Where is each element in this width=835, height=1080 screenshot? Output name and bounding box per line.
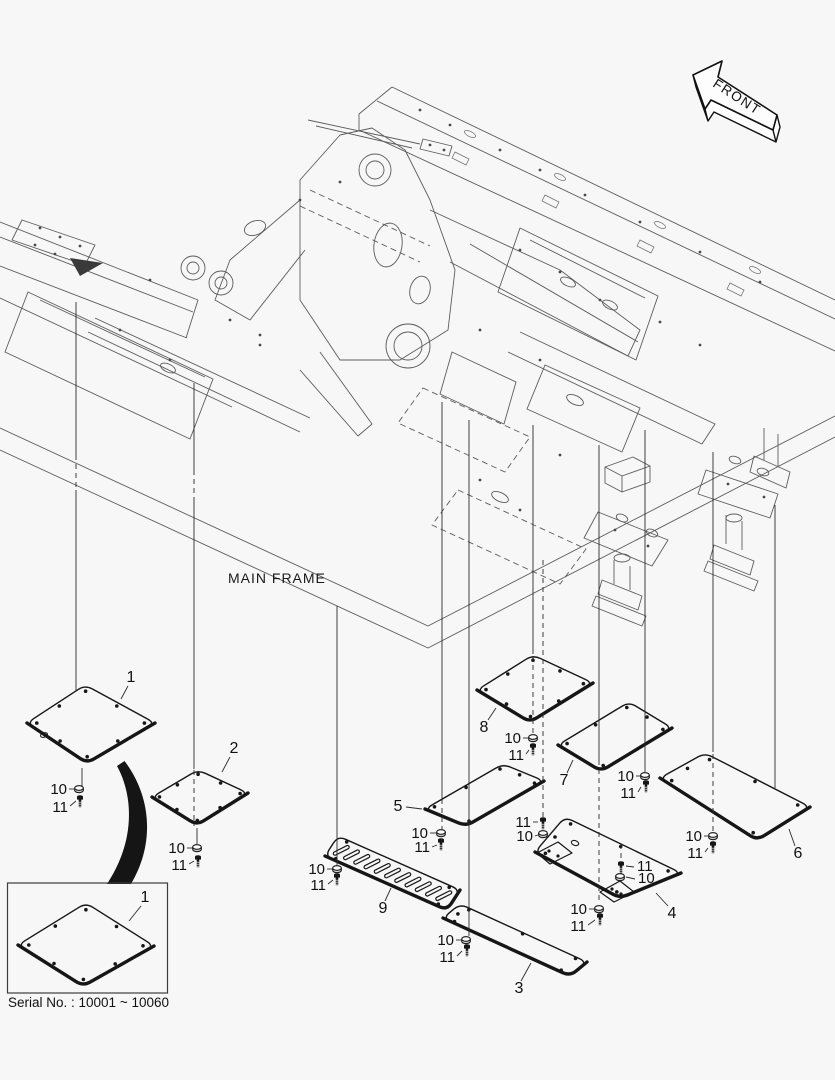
bracket-hole-dot <box>547 849 550 852</box>
washer-callout-7: 10 <box>617 768 634 785</box>
plate-hole-dot <box>218 806 222 810</box>
cover-plate-7 <box>558 704 672 769</box>
frame-dot <box>54 253 57 256</box>
frame-dot <box>519 509 522 512</box>
bolt-callout-9: 11 <box>515 814 531 831</box>
plate-hole-dot <box>113 962 117 966</box>
part-leader-8 <box>488 708 496 720</box>
callout-leader <box>526 750 529 754</box>
plate-outline <box>155 772 244 823</box>
plate-hole-dot <box>625 706 629 710</box>
plate-hole-dot <box>686 767 690 771</box>
bolt-symbol <box>540 817 546 829</box>
plate-hole-dot <box>505 702 509 706</box>
callout-leader <box>535 835 538 836</box>
plate-hole-dot <box>529 715 533 719</box>
plate-hole-dot <box>84 689 88 693</box>
washer-callout-2: 10 <box>168 840 185 857</box>
parts-catalog-page: 1011101110111011101110111011101110111011… <box>0 0 835 1080</box>
frame-dot <box>443 149 446 152</box>
part-number-6: 6 <box>794 845 803 862</box>
plate-outline <box>561 704 668 769</box>
frame-dot <box>169 359 172 362</box>
part-number-2: 2 <box>230 740 239 757</box>
frame-dot <box>539 169 542 172</box>
washer-symbol <box>641 773 650 780</box>
frame-dot <box>519 249 522 252</box>
bolt-callout-4: 11 <box>414 839 430 856</box>
plate-hole-dot <box>196 772 200 776</box>
inset-part-leader <box>129 906 141 921</box>
plate-hole-dot <box>544 852 548 856</box>
plate-hole-dot <box>645 715 649 719</box>
plate-hole-dot <box>574 957 578 961</box>
bolt-symbol <box>195 855 201 867</box>
part-leader-4 <box>656 893 668 906</box>
hidden-cover-outline <box>300 190 586 584</box>
washer-symbol <box>193 845 202 852</box>
plate-hole-dot <box>661 728 665 732</box>
washer-callout-3: 10 <box>308 861 325 878</box>
callout-leader <box>328 880 333 884</box>
plate-hole-dot <box>569 822 573 826</box>
bolt-symbol <box>710 841 716 853</box>
plate-hole-dot <box>58 704 62 708</box>
frame-dot <box>34 244 37 247</box>
callout-labels: 1011101110111011101110111011101110111011… <box>50 669 802 997</box>
part-number-8: 8 <box>480 719 489 736</box>
plate-hole-dot <box>84 908 88 912</box>
frame-dot <box>539 359 542 362</box>
inset-part-number: 1 <box>141 889 150 906</box>
bolt-symbol <box>643 780 649 792</box>
bolt-symbol <box>334 873 340 885</box>
part-number-7: 7 <box>560 772 569 789</box>
plate-hole-dot <box>85 755 89 759</box>
callout-leader <box>588 920 595 925</box>
washer-symbol <box>616 874 625 881</box>
frame-dot <box>479 479 482 482</box>
plate-hole-dot <box>557 699 561 703</box>
frame-dot <box>763 496 766 499</box>
plate-hole-dot <box>558 669 562 673</box>
plate-hole-dot <box>447 886 451 890</box>
frame-dot <box>479 329 482 332</box>
part-leader-6 <box>789 829 795 846</box>
washer-callout-11: 10 <box>570 901 587 918</box>
frame-dot <box>659 321 662 324</box>
bolt-symbol <box>464 944 470 956</box>
plate-hole-dot <box>58 739 62 743</box>
washer-symbol <box>529 735 538 742</box>
plate-outline <box>21 905 150 984</box>
plate-hole-dot <box>751 831 755 835</box>
part-leader-1 <box>121 686 128 699</box>
frame-dot <box>647 545 650 548</box>
bracket-hole-dot <box>610 887 613 890</box>
frame-dot <box>559 271 562 274</box>
frame-dot <box>584 194 587 197</box>
plate-hole-dot <box>115 925 119 929</box>
frame-dot <box>429 144 432 147</box>
frame-dot <box>614 529 617 532</box>
bolt-callout-1: 11 <box>52 799 68 816</box>
cover-plate-6 <box>660 755 810 838</box>
plate-hole-dot <box>141 944 145 948</box>
cover-plate-4 <box>535 819 681 902</box>
bolt-callout-2: 11 <box>171 857 187 874</box>
part-leader-2 <box>222 757 230 772</box>
plate-outline <box>480 657 589 720</box>
plate-outline <box>30 687 151 761</box>
plate-hole-dot <box>143 721 147 725</box>
plate-hole-dot <box>116 739 120 743</box>
part-number-9: 9 <box>379 900 388 917</box>
plate-hole-dot <box>175 808 179 812</box>
frame-dot <box>499 149 502 152</box>
plate-hole-dot <box>615 890 619 894</box>
frame-dot <box>639 221 642 224</box>
callout-leader <box>638 787 641 792</box>
part-number-5: 5 <box>394 798 403 815</box>
frame-dot <box>259 344 262 347</box>
plate-hole-dot <box>559 968 563 972</box>
serial-note: Serial No. : 10001 ~ 10060 <box>8 995 169 1010</box>
frame-dot <box>559 454 562 457</box>
washer-symbol <box>462 937 471 944</box>
frame-dot <box>339 181 342 184</box>
plate-hole-dot <box>498 767 502 771</box>
plate-hole-dot <box>433 805 437 809</box>
bolt-callout-3: 11 <box>310 877 326 894</box>
frame-dot <box>419 109 422 112</box>
callout-leader <box>70 801 76 806</box>
frame-dot <box>229 319 232 322</box>
plate-hole-dot <box>753 780 757 784</box>
frame-dot <box>149 279 152 282</box>
callout-leader <box>457 951 462 956</box>
plate-hole-dot <box>456 912 460 916</box>
plate-hole-dot <box>506 672 510 676</box>
frame-dot <box>759 281 762 284</box>
bracket-hole-dot <box>619 892 622 895</box>
plate-hole-dot <box>553 835 557 839</box>
plate-hole-dot <box>594 723 598 727</box>
plate-hole-dot <box>27 943 31 947</box>
detail-swoosh-arrow <box>107 761 147 884</box>
plate-hole-dot <box>521 932 525 936</box>
frame-dot <box>727 483 730 486</box>
plate-hole-dot <box>54 924 58 928</box>
bolt-callout-5: 11 <box>439 949 455 966</box>
main-frame-label: MAIN FRAME <box>228 570 326 586</box>
bolt-callout-10: 11 <box>637 858 653 875</box>
part-number-4: 4 <box>668 905 677 922</box>
part-leader-5 <box>406 807 422 809</box>
bolt-symbol <box>438 838 444 850</box>
bolt-callout-8: 11 <box>687 845 703 862</box>
frame-dot <box>59 236 62 239</box>
front-direction-arrow: FRONT <box>693 61 780 142</box>
plate-hole-dot <box>176 783 180 787</box>
callout-leader <box>432 845 437 847</box>
frame-dot <box>699 344 702 347</box>
callout-leader <box>189 861 194 864</box>
bracket-hole-dot <box>556 854 559 857</box>
bolt-symbol <box>597 913 603 925</box>
inset-cover-plate <box>18 905 154 984</box>
part-number-1: 1 <box>127 669 136 686</box>
washer-callout-6: 10 <box>504 730 521 747</box>
plate-hole-dot <box>115 704 119 708</box>
exploded-parts-diagram: 1011101110111011101110111011101110111011… <box>0 0 835 1080</box>
callout-leader <box>705 848 708 852</box>
frame-dot <box>79 245 82 248</box>
frame-bolt-dots <box>34 109 766 548</box>
washer-symbol <box>437 830 446 837</box>
plate-hole-dot <box>453 920 457 924</box>
bolt-callout-6: 11 <box>508 747 524 764</box>
washer-symbol <box>333 866 342 873</box>
frame-dot <box>39 227 42 230</box>
cover-plate-1 <box>27 687 155 761</box>
frame-dot <box>299 199 302 202</box>
plate-hole-dot <box>158 795 162 799</box>
plate-hole-dot <box>238 792 242 796</box>
cover-plate-2 <box>152 772 248 823</box>
bolt-callout-7: 11 <box>620 785 636 802</box>
frame-dot <box>599 299 602 302</box>
plate-hole-dot <box>518 773 522 777</box>
frame-dot <box>119 329 122 332</box>
plate-hole-dot <box>670 779 674 783</box>
washer-symbol <box>709 833 718 840</box>
plate-hole-dot <box>345 840 349 844</box>
part-leader-3 <box>521 963 531 981</box>
frame-dot <box>449 124 452 127</box>
main-frame-drawing <box>0 87 835 648</box>
plate-hole-dot <box>484 688 488 692</box>
plate-hole-dot <box>533 781 537 785</box>
frame-dot <box>259 334 262 337</box>
plate-hole-dot <box>35 721 39 725</box>
bolt-symbol <box>530 743 536 755</box>
frame-dot <box>699 251 702 254</box>
plate-hole-dot <box>601 764 605 768</box>
plate-hole-dot <box>437 902 441 906</box>
plate-hole-dot <box>582 682 586 686</box>
washer-callout-8: 10 <box>685 828 702 845</box>
bolt-callout-11: 11 <box>570 918 586 935</box>
plate-hole-dot <box>708 758 712 762</box>
plate-hole-dot <box>666 869 670 873</box>
washer-callout-5: 10 <box>437 932 454 949</box>
plate-hole-dot <box>52 962 56 966</box>
washer-symbol <box>595 906 604 913</box>
washer-symbol <box>75 786 84 793</box>
bolt-symbol <box>77 795 83 807</box>
plate-hole-dot <box>82 978 86 982</box>
part-number-3: 3 <box>515 980 524 997</box>
plate-hole-dot <box>464 786 468 790</box>
washer-symbol <box>539 831 548 838</box>
plate-hole-dot <box>796 803 800 807</box>
plate-hole-dot <box>565 742 569 746</box>
plate-hole-dot <box>196 819 200 823</box>
washer-callout-1: 10 <box>50 781 67 798</box>
plate-hole-dot <box>219 781 223 785</box>
